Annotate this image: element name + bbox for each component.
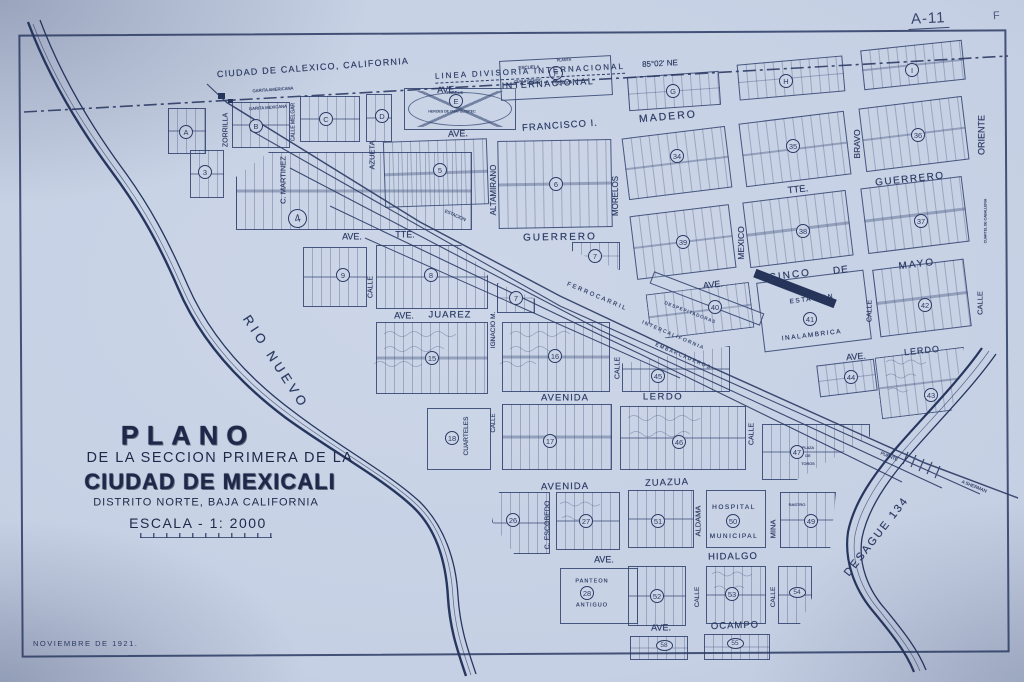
map-labels-layer: ABCDEFGHI3456778915161718262728343536373… <box>0 0 1024 682</box>
street-label: CALLE <box>368 276 375 298</box>
street-label: ORIENTE <box>978 115 987 155</box>
street-label: ZORRILLA <box>223 113 230 147</box>
block-number: 16 <box>548 349 562 363</box>
street-label: CALLE <box>976 291 984 315</box>
feature-label: ESTACION <box>444 209 467 222</box>
block-number: 45 <box>651 369 665 383</box>
street-label: CALLE <box>867 300 874 322</box>
avenue-label: TTE. <box>395 231 415 240</box>
block-number: 43 <box>924 388 938 402</box>
street-label: C. ESCOBEDO <box>545 501 552 550</box>
avenue-label: AVE. <box>846 352 867 363</box>
street-label: CALLE <box>771 587 778 608</box>
street-label: MEXICO <box>737 226 746 260</box>
feature-label: RASTRO <box>789 503 806 507</box>
feature-label: TOROS <box>801 463 814 467</box>
street-label: ALTAMIRANO <box>490 165 498 216</box>
block-number: I <box>905 63 919 77</box>
block-number: 28 <box>580 586 594 600</box>
map-date: NOVIEMBRE DE 1921. <box>33 639 138 648</box>
block-number: 52 <box>650 589 664 603</box>
waterway-label: DESAGUE 134 <box>843 495 912 578</box>
block-number: E <box>449 94 463 108</box>
block-number: 18 <box>445 431 459 445</box>
block-number: 54 <box>789 587 806 598</box>
feature-label: INALAMBRICA <box>782 329 843 343</box>
block-number: 7 <box>588 249 602 263</box>
feature-label: PANTEON <box>575 579 608 585</box>
avenue-label: CINCO <box>768 268 811 283</box>
avenue-label: AVE. <box>651 623 671 632</box>
street-label: MORELOS <box>612 176 620 216</box>
block-number: D <box>375 109 389 123</box>
feature-label: ESTACION <box>789 294 834 306</box>
block-number: 35 <box>786 139 800 153</box>
block-number: 53 <box>725 587 739 601</box>
street-label: ALDAMA <box>694 506 702 537</box>
avenue-label: GUERRERO <box>523 232 597 243</box>
block-number: 51 <box>651 514 665 528</box>
block-number: 4 <box>285 206 308 229</box>
street-label: MINA <box>769 520 777 539</box>
block-number: 3 <box>198 165 212 179</box>
block-number: 34 <box>670 149 684 163</box>
block-number: 8 <box>424 268 438 282</box>
street-label: CALLE MELGAR <box>292 103 297 141</box>
block-number: 49 <box>804 514 818 528</box>
avenue-label: LERDO <box>643 392 683 402</box>
railroad-label: INTERCALIFORNIA <box>641 321 705 352</box>
feature-label: GARITA MEXICANA <box>249 105 287 112</box>
block-number: 44 <box>844 370 858 384</box>
avenue-label: MAYO <box>898 258 936 272</box>
street-label: CALLE <box>491 413 497 432</box>
avenue-label: HIDALGO <box>708 552 758 562</box>
block-number: H <box>779 74 793 88</box>
block-number: 7 <box>509 291 523 305</box>
block-number: 40 <box>708 300 722 314</box>
block-number: 38 <box>796 224 810 238</box>
street-label: CALLE <box>749 423 756 445</box>
block-number: G <box>666 84 680 98</box>
block-number: 58 <box>656 640 673 651</box>
block-number: 41 <box>803 312 817 326</box>
block-number: 26 <box>506 513 520 527</box>
block-number: 55 <box>727 638 744 649</box>
avenue-label: AVE. <box>342 233 362 242</box>
street-label: C. MARTINEZ <box>279 156 287 204</box>
feature-label: HEROES DE CHAPULTEPEC <box>428 110 475 114</box>
feature-label: DE <box>805 455 810 459</box>
feature-label: HOSPITAL <box>712 505 756 512</box>
avenue-label: DE <box>832 265 849 277</box>
block-number: 5 <box>433 163 447 177</box>
avenue-label: OCAMPO <box>711 620 760 631</box>
street-label: BRAVO <box>853 129 862 158</box>
block-number: 15 <box>425 351 439 365</box>
feature-label: ANTIGUO <box>576 603 608 609</box>
block-number: 9 <box>336 268 350 282</box>
graphic-scale-bar <box>140 533 272 538</box>
avenue-label: TTE. <box>787 184 808 196</box>
avenue-label: AVENIDA <box>541 393 589 403</box>
feature-label: PARQUE <box>447 91 464 95</box>
street-label: AZUETA <box>368 140 376 169</box>
street-label: IGNACIO M. <box>491 312 498 348</box>
block-number: 27 <box>579 514 593 528</box>
avenue-label: JUAREZ <box>429 310 472 320</box>
map-scale-text: ESCALA - 1: 2000 <box>129 516 267 530</box>
map-subtitle-1: DE LA SECCION PRIMERA DE LA <box>87 451 354 466</box>
block-number: 50 <box>726 514 740 528</box>
street-label: CALLE <box>615 357 622 379</box>
feature-label: GARITA AMERICANA <box>252 86 293 93</box>
block-number: 6 <box>549 177 563 191</box>
map-subtitle-2: CIUDAD DE MEXICALI <box>84 471 335 493</box>
feature-label: PLANTA <box>557 59 572 64</box>
feature-label: CUARTEL DE CABALLERIA <box>984 199 988 244</box>
map-title: PLANO <box>121 423 256 450</box>
waterway-label: PUENTE <box>880 451 899 462</box>
avenue-label: ZUAZUA <box>645 477 689 488</box>
block-number: 37 <box>914 214 928 228</box>
street-label: CALLE <box>695 587 702 608</box>
block-number: 17 <box>543 434 557 448</box>
block-number: 39 <box>676 235 690 249</box>
avenue-label: AVE. <box>703 279 724 290</box>
sheet-number: A-11 <box>908 9 950 30</box>
avenue-label: MADERO <box>639 109 698 125</box>
avenue-label: AVE. <box>594 556 614 565</box>
map-photo: ABCDEFGHI3456778915161718262728343536373… <box>0 0 1024 682</box>
block-number: 42 <box>918 298 932 312</box>
avenue-label: LERDO <box>904 345 941 358</box>
feature-label: PLAZA <box>802 447 814 451</box>
block-number: B <box>249 119 263 133</box>
block-number: 36 <box>911 128 925 142</box>
map-subtitle-3: DISTRITO NORTE, BAJA CALIFORNIA <box>93 498 319 509</box>
waterway-label: RIO NUEVO <box>241 313 311 411</box>
waterway-label: A SHERMAN <box>961 480 987 494</box>
corner-letter: F <box>993 10 1001 22</box>
avenue-label: FRANCISCO I. <box>522 119 598 134</box>
railroad-label: FERROCARRIL <box>566 282 628 313</box>
feature-label: MUNICIPAL <box>710 534 758 541</box>
block-number: 46 <box>672 435 686 449</box>
street-label: CUARTELES <box>464 417 471 456</box>
avenue-label: AVENIDA <box>541 482 589 492</box>
block-number: A <box>179 125 193 139</box>
avenue-label: AVE. <box>394 312 414 321</box>
avenue-label: AVE. <box>448 129 468 139</box>
block-number: C <box>319 112 333 126</box>
avenue-label: GUERRERO <box>875 171 945 188</box>
